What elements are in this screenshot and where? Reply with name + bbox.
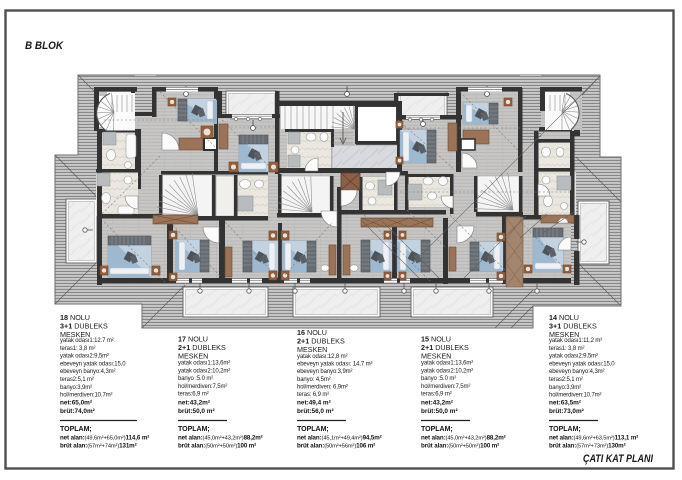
svg-text:banyo:3,9m²: banyo:3,9m² (60, 385, 92, 391)
svg-text:brüt alan:(50m²+50m²)100 m²: brüt alan:(50m²+50m²)100 m² (421, 443, 499, 450)
svg-text:MESKEN: MESKEN (178, 352, 208, 361)
svg-text:yatak odası1:13,6m²: yatak odası1:13,6m² (178, 361, 230, 367)
svg-text:net:43,2m²: net:43,2m² (178, 400, 210, 407)
svg-text:banyo :5.0 m²: banyo :5.0 m² (421, 376, 456, 382)
svg-text:net alan:(45,0m²+43,2m²)88,2m²: net alan:(45,0m²+43,2m²)88,2m² (178, 435, 263, 442)
svg-text:ÇATI KAT PLANI: ÇATI KAT PLANI (583, 453, 654, 465)
svg-text:brüt alan:(57m²+74m²)131m²: brüt alan:(57m²+74m²)131m² (60, 443, 137, 450)
svg-text:net alan:(45,0m²+43,2m²)88,2m²: net alan:(45,0m²+43,2m²)88,2m² (421, 435, 506, 442)
svg-text:brüt alan:(50m²+50m²)100 m²: brüt alan:(50m²+50m²)100 m² (178, 443, 256, 450)
svg-text:yatak odası1:12.7 m²: yatak odası1:12.7 m² (60, 338, 114, 344)
svg-text:yatak odası1:13,6m²: yatak odası1:13,6m² (421, 361, 473, 367)
svg-text:hol/merdiven:10.7m²: hol/merdiven:10.7m² (549, 393, 602, 399)
svg-text:net:63,5m²: net:63,5m² (549, 400, 581, 407)
svg-text:hol/merdiven:7,5m²: hol/merdiven:7,5m² (178, 384, 227, 390)
svg-text:yatak odası1:11,2 m²: yatak odası1:11,2 m² (549, 338, 602, 344)
svg-text:hol/merdiven:10.7m²: hol/merdiven:10.7m² (60, 393, 113, 399)
svg-text:TOPLAM;: TOPLAM; (549, 426, 581, 433)
svg-text:teras:6,9 m²: teras:6,9 m² (421, 392, 452, 398)
svg-text:banyo :5.0 m²: banyo :5.0 m² (178, 376, 213, 382)
svg-text:teras: 6,9 m²: teras: 6,9 m² (297, 392, 329, 398)
svg-text:banyo:3,9m²: banyo:3,9m² (549, 385, 581, 391)
svg-text:brüt alan:(57m²+73m²)130m²: brüt alan:(57m²+73m²)130m² (549, 443, 626, 450)
svg-text:TOPLAM;: TOPLAM; (421, 426, 453, 433)
svg-text:brüt:73,0m²: brüt:73,0m² (549, 408, 584, 415)
svg-text:teras1: 3,8 m²: teras1: 3,8 m² (60, 346, 95, 352)
svg-text:ebeveyn banyo:3,9m²: ebeveyn banyo:3,9m² (297, 369, 353, 375)
svg-text:brüt:50,0 m²: brüt:50,0 m² (178, 408, 215, 415)
svg-text:yatak odası:12,8 m²: yatak odası:12,8 m² (297, 354, 348, 360)
svg-text:net alan:(49,6m²+65,0m²)114,6: net alan:(49,6m²+65,0m²)114,6 m² (60, 435, 149, 442)
svg-text:yatak odası2:10,2m²: yatak odası2:10,2m² (421, 368, 473, 374)
svg-text:MESKEN: MESKEN (421, 352, 451, 361)
svg-text:MESKEN: MESKEN (297, 345, 327, 354)
svg-text:TOPLAM;: TOPLAM; (60, 426, 92, 433)
svg-text:brüt alan:(50m²+56m²)106 m²: brüt alan:(50m²+56m²)106 m² (297, 443, 375, 450)
svg-text:net alan:(49,6m²+63,5m²)113,1: net alan:(49,6m²+63,5m²)113,1 m² (549, 435, 638, 442)
svg-text:yatak odası2:9,5m²: yatak odası2:9,5m² (60, 354, 109, 360)
svg-text:hol/merdiven: 6,9m²: hol/merdiven: 6,9m² (297, 384, 348, 390)
svg-text:TOPLAM;: TOPLAM; (178, 426, 210, 433)
svg-text:teras:6,9 m²: teras:6,9 m² (178, 392, 209, 398)
svg-text:ebeveyn yatak odası:15,0: ebeveyn yatak odası:15,0 (549, 361, 615, 367)
svg-text:net alan:(45,1m²+49,4m²)94,5m²: net alan:(45,1m²+49,4m²)94,5m² (297, 435, 382, 442)
svg-text:ebeveyn yatak odası:15,0: ebeveyn yatak odası:15,0 (60, 361, 126, 367)
svg-text:banyo: 4,5m²: banyo: 4,5m² (297, 377, 331, 383)
svg-text:B BLOK: B BLOK (25, 40, 64, 52)
svg-text:net:43,2m²: net:43,2m² (421, 400, 453, 407)
svg-text:teras2:5,1 m²: teras2:5,1 m² (549, 377, 583, 383)
svg-text:hol/merdiven:7,5m²: hol/merdiven:7,5m² (421, 384, 470, 390)
svg-text:brüt:74,0m²: brüt:74,0m² (60, 408, 95, 415)
svg-text:net:65,0m²: net:65,0m² (60, 400, 92, 407)
svg-text:brüt:56,0 m²: brüt:56,0 m² (297, 408, 334, 415)
svg-text:brüt:50,0 m²: brüt:50,0 m² (421, 408, 458, 415)
svg-text:ebeveyn yatak odası: 14,7 m²: ebeveyn yatak odası: 14,7 m² (297, 362, 372, 368)
svg-text:teras1: 3,8 m²: teras1: 3,8 m² (549, 346, 584, 352)
svg-text:TOPLAM;: TOPLAM; (297, 426, 329, 433)
svg-text:teras2:5,1 m²: teras2:5,1 m² (60, 377, 94, 383)
svg-text:ebeveyn banyo:4,3m²: ebeveyn banyo:4,3m² (549, 369, 605, 375)
svg-text:yatak odası2:10,2m²: yatak odası2:10,2m² (178, 368, 230, 374)
svg-text:ebeveyn banyo:4,3m²: ebeveyn banyo:4,3m² (60, 369, 116, 375)
svg-text:net:49,4 m²: net:49,4 m² (297, 400, 331, 407)
svg-text:yatak odası2:9,5m²: yatak odası2:9,5m² (549, 354, 598, 360)
